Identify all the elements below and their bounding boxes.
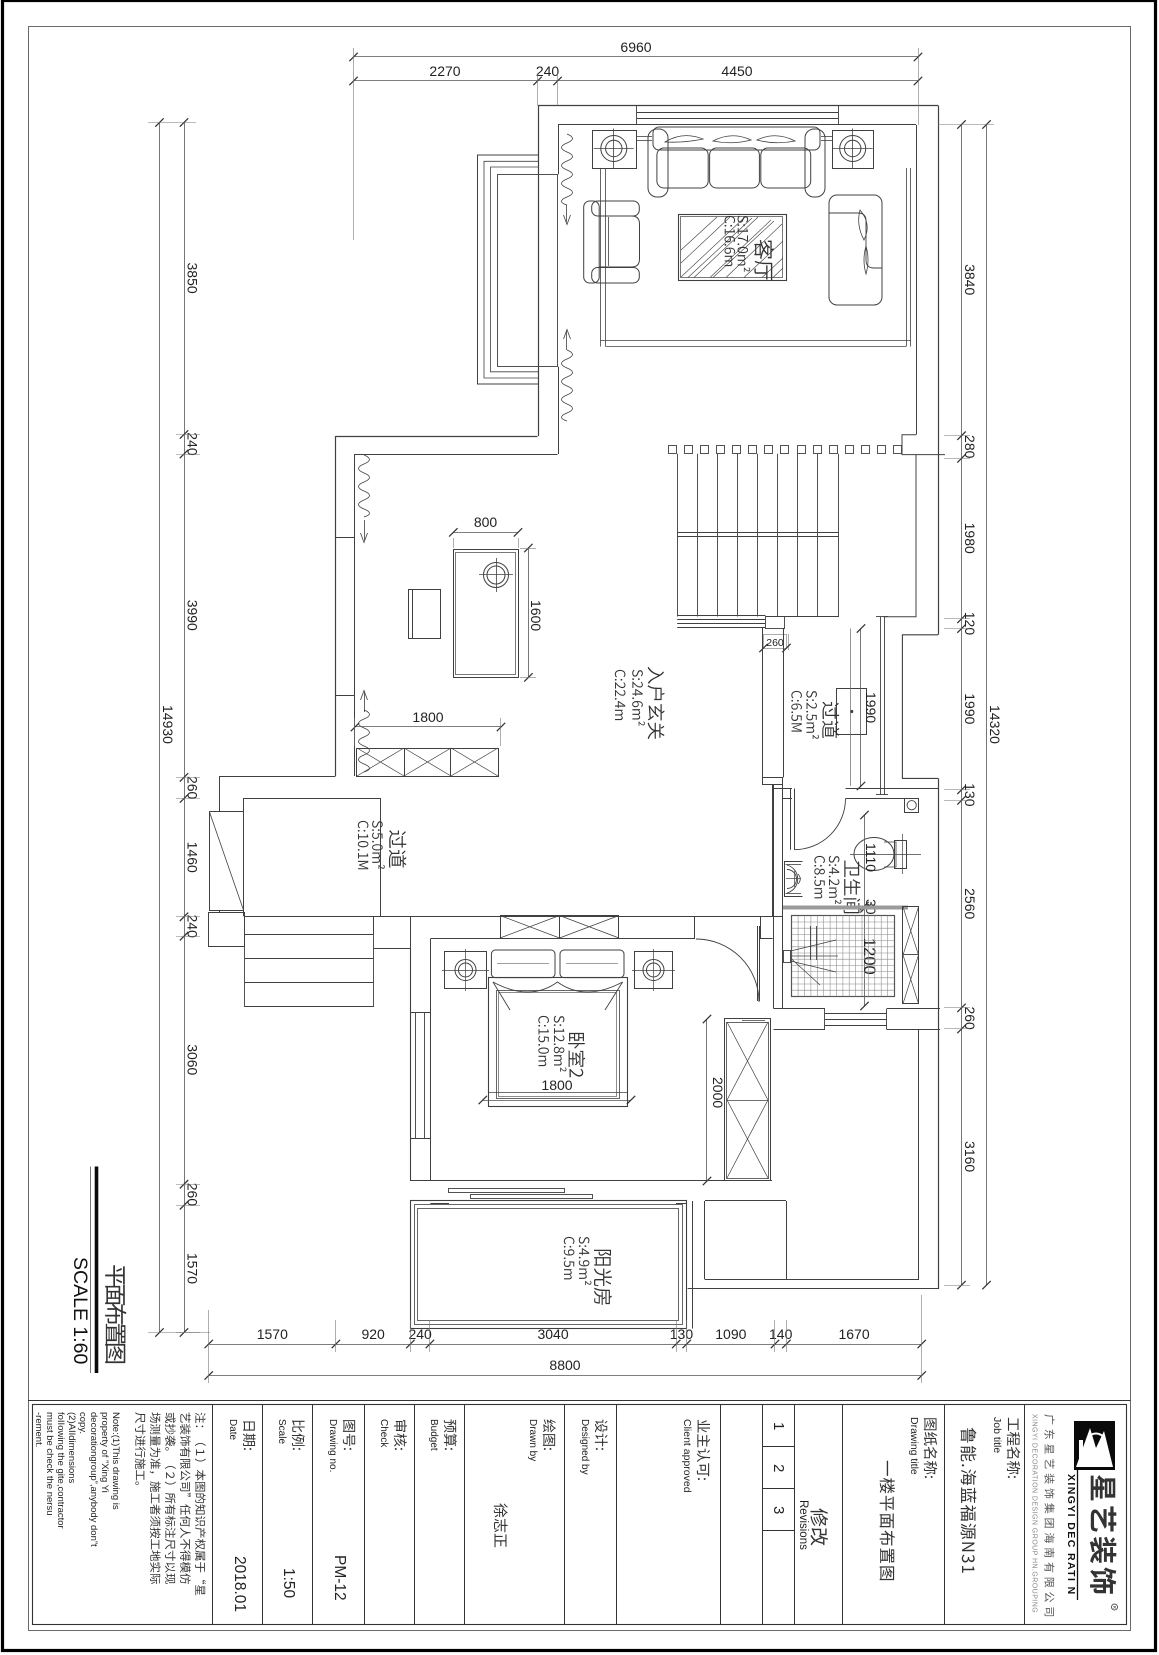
svg-text:SCALE 1:60: SCALE 1:60 [69,1257,91,1364]
svg-text:4450: 4450 [721,63,752,79]
svg-text:260: 260 [185,776,201,800]
svg-text:XINGYI DECORATION DESIGN GROUP: XINGYI DECORATION DESIGN GROUP HN.GROUPI… [1031,1414,1038,1613]
svg-text:1570: 1570 [185,1253,201,1284]
svg-text:Drawing title: Drawing title [908,1417,920,1475]
svg-text:3: 3 [770,1506,787,1514]
svg-text:decorationgroup”,anybody don”t: decorationgroup”,anybody don”t [88,1412,99,1547]
svg-text:240: 240 [185,915,201,939]
svg-text:-rement.: -rement. [33,1412,44,1447]
svg-text:Drawn by: Drawn by [527,1419,538,1461]
svg-text:3160: 3160 [962,1141,978,1172]
svg-text:Date: Date [227,1419,238,1441]
svg-text:foIIowing the gite,contractor: foIIowing the gite,contractor [55,1412,66,1529]
svg-text:1: 1 [770,1422,787,1430]
svg-text:3850: 3850 [185,263,201,294]
svg-text:1800: 1800 [412,709,443,725]
svg-text:XINGYI DEC RATI N: XINGYI DEC RATI N [1065,1474,1077,1596]
svg-text:240: 240 [408,1326,432,1342]
svg-text:(2)AIIdimensions: (2)AIIdimensions [66,1412,77,1484]
svg-text:120: 120 [962,612,978,636]
svg-text:3990: 3990 [185,600,201,631]
svg-text:2270: 2270 [429,63,460,79]
svg-text:Job title: Job title [991,1417,1003,1453]
svg-text:260: 260 [185,1183,201,1207]
svg-text:2560: 2560 [962,888,978,919]
svg-text:240: 240 [185,432,201,456]
svg-text:copy.: copy. [77,1412,88,1434]
svg-text:1600: 1600 [528,600,544,631]
svg-text:14320: 14320 [987,705,1003,744]
svg-text:280: 280 [962,435,978,459]
svg-text:PM-12: PM-12 [331,1555,348,1601]
svg-text:1110: 1110 [863,843,879,872]
svg-text:260: 260 [962,1006,978,1030]
svg-text:3060: 3060 [185,1044,201,1075]
svg-text:must be check the nersu: must be check the nersu [44,1412,55,1516]
svg-text:Client approved: Client approved [681,1419,693,1493]
svg-text:2: 2 [770,1464,787,1472]
svg-text:Scale: Scale [276,1419,287,1444]
svg-text:1:50: 1:50 [280,1568,297,1599]
svg-text:1570: 1570 [257,1326,288,1342]
svg-text:1090: 1090 [715,1326,746,1342]
svg-text:800: 800 [474,514,498,530]
svg-text:14930: 14930 [160,705,176,744]
svg-text:Check: Check [378,1419,389,1448]
svg-text:8800: 8800 [549,1357,580,1373]
svg-text:1670: 1670 [838,1326,869,1342]
svg-text:1990: 1990 [863,692,879,723]
svg-text:260: 260 [766,637,784,649]
svg-text:Drawing no.: Drawing no. [327,1419,338,1472]
svg-text:Note:(1)This drawing is: Note:(1)This drawing is [110,1412,121,1510]
svg-text:Revisions: Revisions [797,1500,809,1550]
svg-text:property of ”Xing Yi: property of ”Xing Yi [99,1412,110,1493]
svg-text:130: 130 [670,1326,694,1342]
svg-text:1980: 1980 [962,523,978,554]
svg-text:3040: 3040 [537,1326,568,1342]
svg-text:1460: 1460 [185,842,201,873]
svg-text:2018.01: 2018.01 [231,1556,248,1612]
svg-text:240: 240 [536,63,560,79]
svg-text:3840: 3840 [962,264,978,295]
svg-text:920: 920 [361,1326,385,1342]
svg-text:140: 140 [769,1326,793,1342]
svg-text:Budget: Budget [428,1419,439,1451]
svg-text:1990: 1990 [962,693,978,724]
svg-text:6960: 6960 [620,39,651,55]
svg-text:130: 130 [962,783,978,807]
svg-text:Designed by: Designed by [579,1419,590,1475]
svg-text:1800: 1800 [541,1077,572,1093]
svg-text:2000: 2000 [710,1077,726,1108]
svg-text:1200: 1200 [860,938,878,975]
